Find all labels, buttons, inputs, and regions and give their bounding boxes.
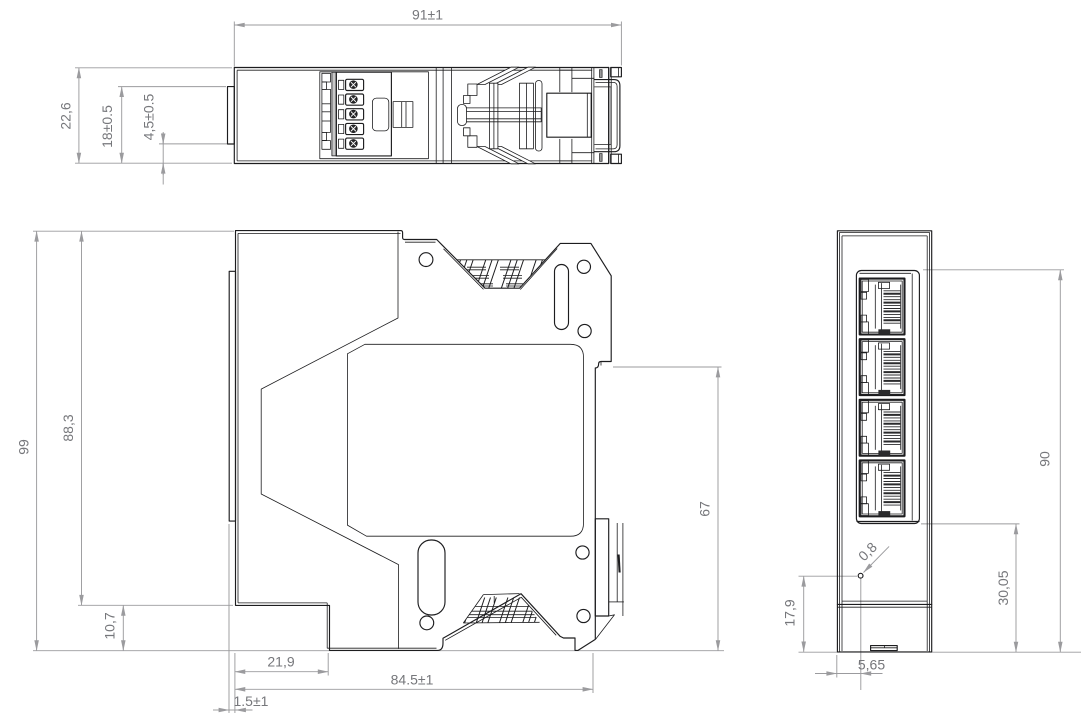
svg-text:5,65: 5,65: [858, 657, 885, 673]
svg-text:91±1: 91±1: [412, 7, 443, 23]
svg-text:90: 90: [1037, 451, 1053, 467]
svg-text:30,05: 30,05: [995, 570, 1011, 605]
svg-text:21,9: 21,9: [267, 654, 294, 670]
svg-text:4,5±0.5: 4,5±0.5: [141, 93, 157, 140]
svg-text:88,3: 88,3: [60, 414, 76, 441]
svg-text:22,6: 22,6: [58, 102, 74, 129]
svg-text:1.5±1: 1.5±1: [234, 693, 269, 709]
svg-text:84.5±1: 84.5±1: [391, 671, 434, 687]
svg-text:17,9: 17,9: [782, 599, 798, 626]
svg-text:67: 67: [697, 501, 713, 517]
svg-text:99: 99: [16, 439, 32, 455]
svg-text:18±0.5: 18±0.5: [99, 105, 115, 148]
svg-text:10,7: 10,7: [102, 612, 118, 639]
